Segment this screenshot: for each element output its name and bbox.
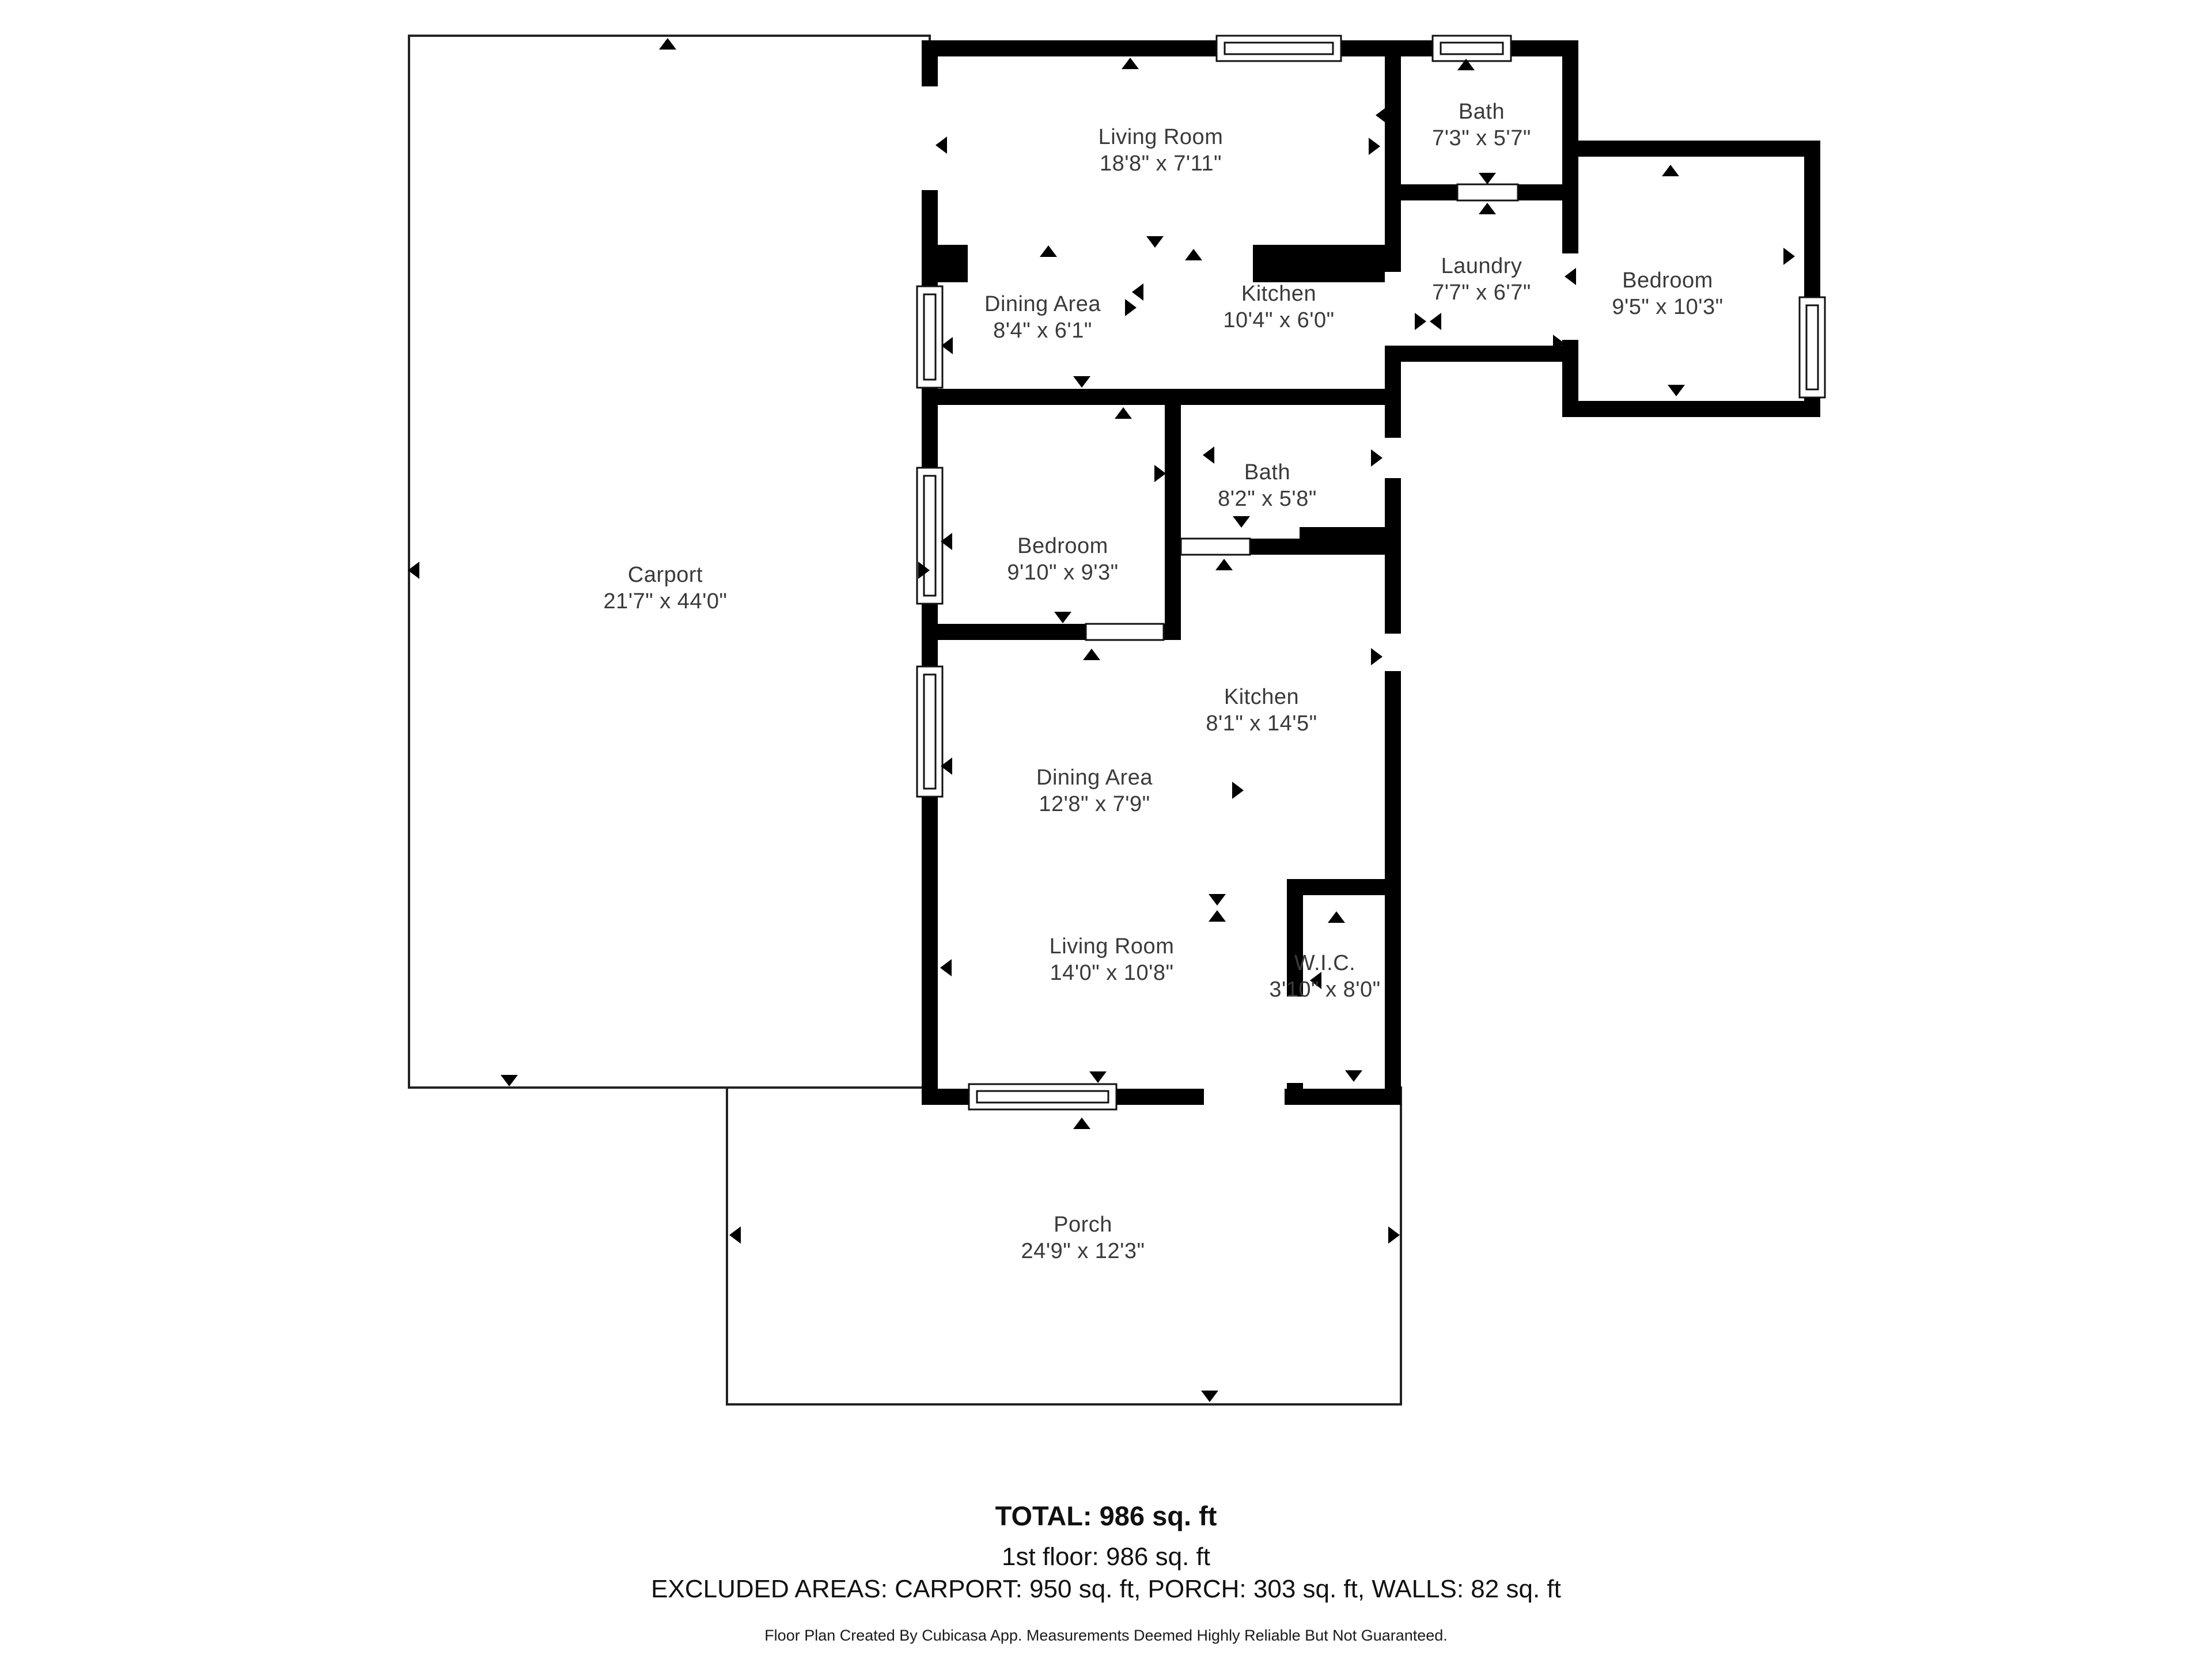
summary-disclaimer: Floor Plan Created By Cubicasa App. Meas… — [0, 1627, 2212, 1645]
room-label-kitchen-middle: Kitchen — [1224, 685, 1299, 709]
wall-notch — [1300, 527, 1385, 555]
room-label-wic: W.I.C. — [1294, 951, 1355, 975]
room-label-kitchen-top: Kitchen — [1241, 282, 1316, 306]
room-dims-carport: 21'7" x 44'0" — [604, 589, 728, 613]
window — [917, 666, 942, 797]
door — [1086, 624, 1164, 640]
floor-plan-page: Living Room 18'8" x 7'11" Bath 7'3" x 5'… — [0, 0, 2212, 1659]
room-label-living-room-bottom: Living Room — [1050, 934, 1175, 959]
room-dims-living-room-top: 18'8" x 7'11" — [1100, 151, 1222, 176]
room-label-dining-area-middle: Dining Area — [1036, 766, 1153, 790]
room-label-living-room-top: Living Room — [1099, 125, 1224, 149]
room-label-bath-middle: Bath — [1244, 460, 1290, 484]
window — [917, 286, 942, 388]
room-label-laundry: Laundry — [1441, 254, 1522, 278]
summary-first-floor: 1st floor: 986 sq. ft — [0, 1543, 2212, 1571]
room-dims-bath-top: 7'3" x 5'7" — [1432, 126, 1531, 150]
window — [1433, 36, 1511, 61]
floor-plan-drawing: Living Room 18'8" x 7'11" Bath 7'3" x 5'… — [0, 0, 2212, 1659]
room-label-carport: Carport — [628, 563, 703, 587]
room-dims-porch: 24'9" x 12'3" — [1021, 1239, 1145, 1263]
summary-excluded-areas: EXCLUDED AREAS: CARPORT: 950 sq. ft, POR… — [0, 1575, 2212, 1604]
room-label-bedroom-right: Bedroom — [1622, 268, 1713, 293]
room-dims-dining-area-top: 8'4" x 6'1" — [993, 319, 1092, 343]
window — [969, 1084, 1116, 1109]
door — [1181, 539, 1250, 555]
room-label-bedroom-middle: Bedroom — [1017, 534, 1108, 558]
room-label-bath-top: Bath — [1459, 100, 1505, 124]
room-dims-kitchen-top: 10'4" x 6'0" — [1223, 308, 1334, 332]
door — [1457, 184, 1518, 200]
room-dims-kitchen-middle: 8'1" x 14'5" — [1206, 711, 1317, 736]
summary-total: TOTAL: 986 sq. ft — [0, 1500, 2212, 1532]
room-dims-wic: 3'10" x 8'0" — [1269, 978, 1380, 1002]
room-label-dining-area-top: Dining Area — [984, 292, 1101, 316]
room-label-porch: Porch — [1054, 1213, 1112, 1237]
room-dims-bath-middle: 8'2" x 5'8" — [1218, 487, 1317, 511]
window — [1217, 36, 1341, 61]
room-dims-living-room-bottom: 14'0" x 10'8" — [1050, 961, 1174, 985]
room-dims-laundry: 7'7" x 6'7" — [1432, 281, 1531, 305]
carport-outline — [409, 36, 930, 1088]
room-dims-bedroom-middle: 9'10" x 9'3" — [1007, 560, 1118, 585]
window — [917, 468, 942, 604]
room-dims-dining-area-middle: 12'8" x 7'9" — [1039, 792, 1150, 816]
room-dims-bedroom-right: 9'5" x 10'3" — [1612, 295, 1723, 319]
window — [1800, 297, 1825, 397]
